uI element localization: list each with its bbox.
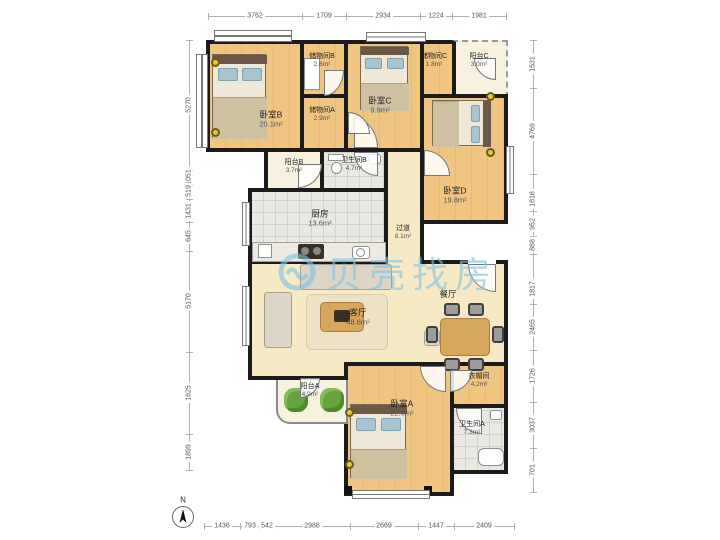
dim-label: 1709 [314,13,334,20]
lamp-icon [486,92,495,101]
dim-label: 2934 [373,13,393,20]
dim-label: 1726 [530,366,537,386]
label-balcony-a: 阳台A4.9m² [301,383,320,399]
dim-label: 1431 [186,201,193,221]
dim-label: 3762 [245,13,265,20]
window [214,30,292,42]
dim-label: 1625 [186,383,193,403]
dim-label: 645 [186,228,193,244]
window [506,146,514,194]
window [242,286,250,346]
dim-label: 2669 [374,523,394,530]
window [242,202,250,246]
hallway-floor [388,152,420,268]
dim-label: 952 [530,216,537,232]
label-hallway: 过道8.1m² [395,225,412,241]
dim-label: 1531 [530,54,537,74]
dim-label: 1618 [530,189,537,209]
label-kitchen: 厨房13.6m² [308,208,331,227]
lamp-icon [345,460,354,469]
wall [504,260,508,366]
bed-bedroom-b [212,54,266,138]
chair [426,326,438,343]
label-balcony-b: 阳台B3.7m² [285,159,304,175]
compass-north-label: N [180,496,186,505]
label-dining: 餐厅 [439,289,456,299]
dim-label: 542 [259,523,275,530]
dim-label: 793 [242,523,258,530]
dim-label: 1436 [212,523,232,530]
appliance [258,244,272,258]
wall [248,376,348,380]
bed-bedroom-d [432,100,490,146]
bathtub-icon [478,448,504,466]
sofa [300,264,392,290]
lamp-icon [211,128,220,137]
label-bedroom-a: 卧室A22.0m² [390,398,413,417]
label-storage-b: 储物间B2.6m² [309,53,335,69]
label-bedroom-b: 卧室B20.1m² [259,109,282,128]
dim-label: 1224 [426,13,446,20]
dim-label: 1817 [530,279,537,299]
label-bedroom-d: 卧室D19.8m² [443,185,466,204]
label-living: 客厅48.6m² [346,307,369,326]
label-storage-c: 储物间C1.8m² [421,53,447,69]
label-bedroom-c: 卧室C9.9m² [368,95,391,114]
label-cloakroom: 衣帽间4.2m² [469,373,490,389]
floorplan-canvas: 卧室B20.1m² 储物间B2.6m² 卧室C9.9m² 储物间C1.8m² 阳… [0,0,720,540]
wall [420,260,468,264]
dim-label: 1981 [469,13,489,20]
dim-label: 3037 [530,415,537,435]
dim-label: 2988 [302,523,322,530]
label-bath-b: 卫生间B4.7m² [341,157,367,173]
window [352,490,430,499]
dim-label: 701 [530,462,537,478]
wall [420,224,424,264]
sofa [264,292,292,348]
label-bath-a: 卫生间A7.3m² [459,421,485,437]
dim-label: 519 [186,183,193,199]
chair [444,303,460,316]
dim-label: 2465 [530,317,537,337]
burner-icon [313,247,321,255]
chair [492,326,504,343]
window [366,32,426,42]
dim-label: 1447 [426,523,446,530]
dining-table [440,318,490,356]
label-storage-a: 储物间A2.9m² [309,107,335,123]
plant-icon [320,388,344,412]
sink-basin-icon [356,248,365,257]
lamp-icon [211,58,220,67]
lamp-icon [486,148,495,157]
dim-label: 5270 [186,95,193,115]
dim-label: 1899 [186,442,193,462]
lamp-icon [345,408,354,417]
burner-icon [301,247,309,255]
wall [496,260,508,264]
basin-icon [490,410,502,420]
window [196,54,208,148]
label-balcony-c: 阳台C3.0m² [469,53,488,69]
column [344,486,352,494]
dim-label: 888 [530,237,537,253]
dim-label: 5170 [186,291,193,311]
dim-label: 2409 [474,523,494,530]
chair [468,303,484,316]
dim-label: 4769 [530,121,537,141]
compass-icon [172,506,194,528]
